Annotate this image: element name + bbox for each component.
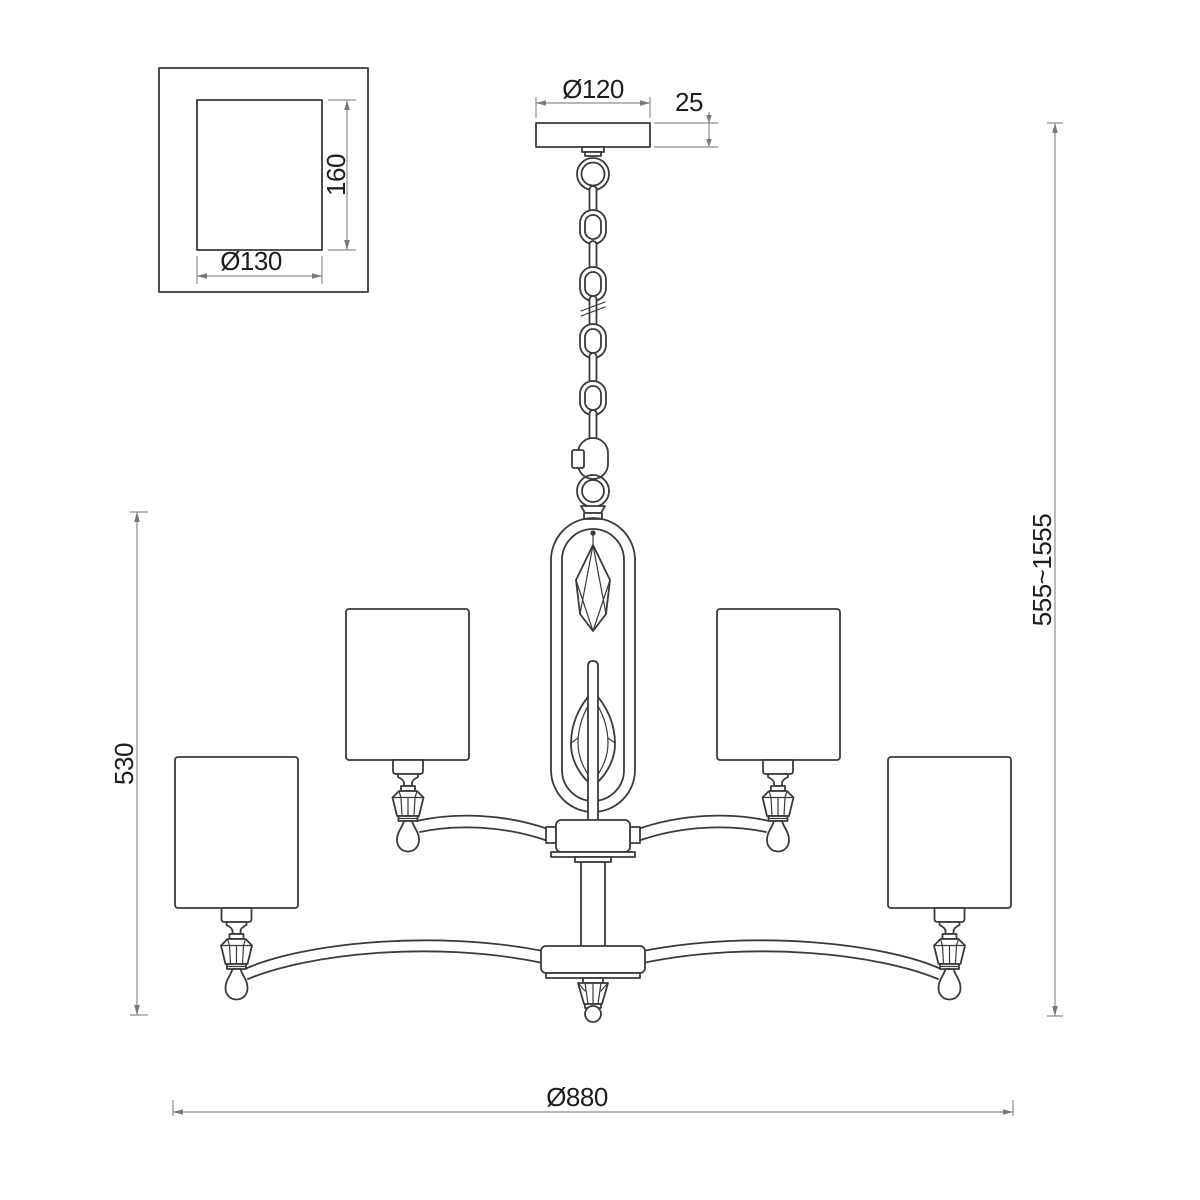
canopy-collar [582,147,604,156]
frame-cap [581,506,605,519]
suspension-ring [577,475,609,507]
detail-diameter-label: Ø130 [220,246,282,276]
overall-diameter-label: Ø880 [546,1082,608,1112]
upper-hub-left-tab [546,827,556,843]
dim-detail-height: 160 [321,100,356,250]
shade-upper-right [717,609,840,760]
arm-lower-right [643,940,941,969]
lower-arm-hub [541,946,645,978]
arm-lower-right-lower-edge [643,951,938,979]
dim-canopy-thickness: 25 [654,87,718,147]
canopy-diameter-label: Ø120 [562,74,624,104]
chandelier-drawing [175,123,1011,1022]
arm-lower-left [245,940,543,969]
centre-rod [588,661,598,822]
chain-link-front-1 [580,210,606,244]
upper-arm-hub [546,820,640,862]
shade-lower-right [888,757,1011,908]
arm-upper-right-lower-edge [638,827,766,841]
quick-link-connector [572,438,608,479]
dim-overall-height: 555~1555 [1027,123,1063,1016]
quick-link-sleeve [572,450,584,468]
dim-body-height: 530 [109,512,148,1015]
dim-overall-diameter: Ø880 [173,1082,1013,1116]
dim-detail-diameter: Ø130 [197,246,322,284]
candle-lower-right [934,908,965,1000]
detail-height-label: 160 [321,154,351,196]
bottom-finial [578,978,608,1022]
suspension-chain [580,186,606,442]
candle-upper-right [763,760,794,852]
overall-height-label: 555~1555 [1027,514,1057,626]
dim-canopy-diameter: Ø120 [536,74,650,118]
body-height-label: 530 [109,743,139,785]
candle-upper-left [393,760,424,852]
shade-upper-left [346,609,469,760]
shade-lower-left [175,757,298,908]
canopy-thickness-label: 25 [675,87,703,117]
finial-ball [585,1006,601,1022]
chain-link-side-4 [590,353,597,383]
upper-hub-right-tab [630,827,640,843]
ceiling-canopy [536,123,650,147]
chandelier-dimension-drawing: 160 Ø130 [0,0,1200,1200]
arm-upper-left-lower-edge [420,827,548,841]
candle-lower-left [221,908,252,1000]
upper-crystal-drop [576,530,610,631]
arm-lower-left-lower-edge [248,951,543,979]
detail-canopy-outline [197,100,322,250]
centre-column [581,862,605,947]
